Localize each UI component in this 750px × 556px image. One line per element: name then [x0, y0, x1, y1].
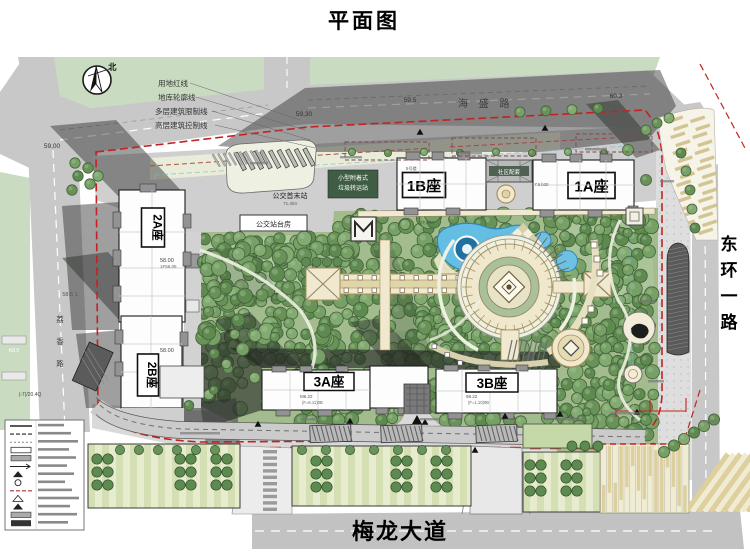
svg-text:59,00: 59,00: [44, 143, 61, 150]
svg-text:98.22: 98.22: [466, 394, 478, 399]
svg-text:环: 环: [721, 261, 738, 280]
svg-text:公交首末站: 公交首末站: [273, 191, 308, 200]
svg-text:7F,A04: 7F,A04: [420, 220, 435, 225]
svg-text:地库轮廓线: 地库轮廓线: [158, 92, 196, 102]
svg-text:社区配套: 社区配套: [498, 168, 521, 176]
svg-text:垃圾转运站: 垃圾转运站: [338, 184, 368, 192]
svg-text:1A座: 1A座: [574, 178, 608, 196]
svg-text:海 盛 路: 海 盛 路: [458, 97, 514, 110]
svg-text:60.3: 60.3: [610, 93, 623, 100]
svg-text:多层建筑限制线: 多层建筑限制线: [155, 106, 208, 116]
svg-text:2A座: 2A座: [151, 214, 165, 241]
svg-text:路: 路: [56, 358, 64, 368]
svg-text:公交站台房: 公交站台房: [256, 220, 291, 229]
svg-text:K8.5: K8.5: [9, 348, 20, 354]
svg-text:香: 香: [56, 336, 64, 346]
svg-text:3B座: 3B座: [477, 375, 508, 391]
svg-text:58.5 1: 58.5 1: [62, 292, 77, 298]
svg-text:M6.22: M6.22: [300, 394, 313, 399]
svg-text:梅龙大道: 梅龙大道: [352, 519, 448, 544]
svg-text:58.00: 58.00: [160, 348, 174, 354]
svg-text:小型附着式: 小型附着式: [338, 174, 368, 182]
svg-text:1F56.05: 1F56.05: [160, 264, 177, 269]
svg-text:+7.5 b30: +7.5 b30: [532, 182, 549, 187]
svg-text:北: 北: [108, 62, 117, 72]
svg-text:3A座: 3A座: [314, 374, 345, 390]
svg-text:用地红线: 用地红线: [158, 78, 188, 88]
svg-text:高层建筑控制线: 高层建筑控制线: [155, 120, 208, 130]
svg-text:一: 一: [721, 287, 738, 306]
svg-text:(F=6.11)0B: (F=6.11)0B: [302, 400, 323, 405]
svg-text:(-7)/20.4Q: (-7)/20.4Q: [19, 392, 42, 398]
svg-text:5号楼: 5号楼: [406, 165, 417, 172]
svg-text:59.5: 59.5: [404, 97, 417, 104]
svg-text:荔: 荔: [56, 314, 64, 324]
svg-text:71.404: 71.404: [283, 201, 297, 206]
svg-text:(F=1.10)0B: (F=1.10)0B: [468, 400, 489, 405]
svg-text:平面图: 平面图: [328, 10, 400, 33]
svg-text:路: 路: [721, 312, 739, 332]
svg-text:东: 东: [721, 234, 738, 254]
svg-text:59,30: 59,30: [296, 111, 313, 118]
svg-text:1B座: 1B座: [407, 177, 441, 195]
svg-text:2B座: 2B座: [145, 362, 159, 389]
